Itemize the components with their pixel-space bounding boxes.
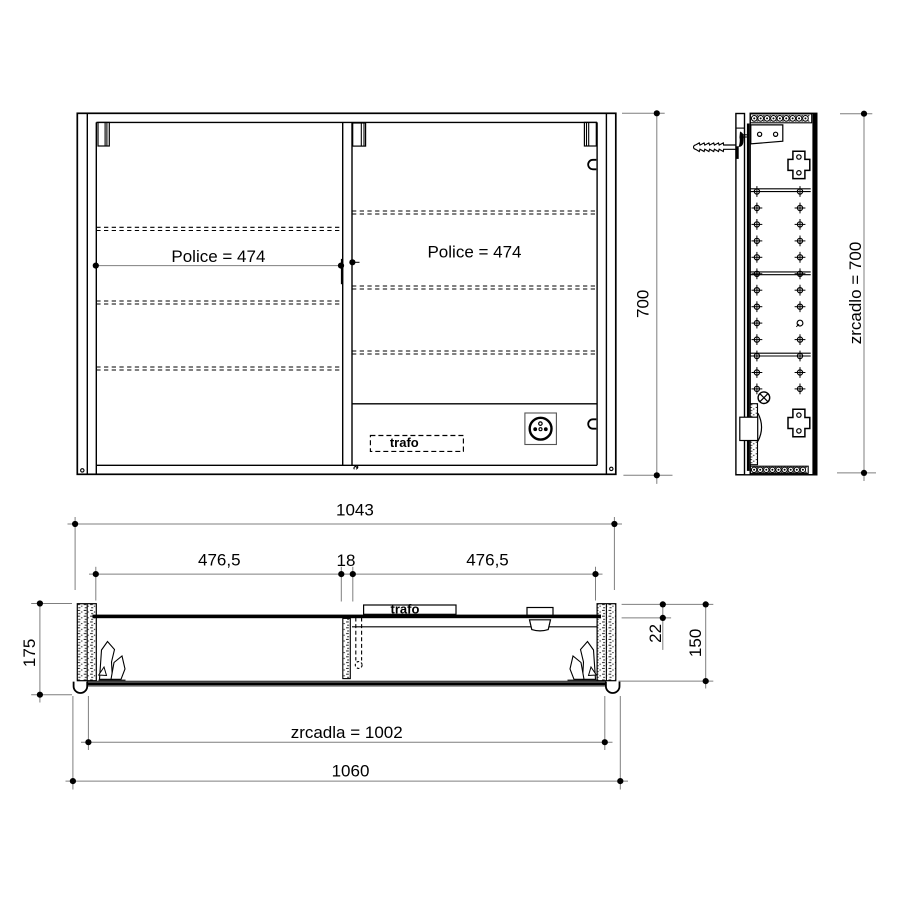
svg-text:Police = 474: Police = 474 bbox=[171, 247, 265, 266]
svg-text:zrcadla = 1002: zrcadla = 1002 bbox=[291, 723, 403, 742]
svg-text:trafo: trafo bbox=[390, 435, 419, 450]
svg-text:trafo: trafo bbox=[391, 601, 420, 616]
svg-text:476,5: 476,5 bbox=[466, 550, 509, 569]
svg-text:175: 175 bbox=[20, 639, 39, 667]
svg-text:zrcadlo = 700: zrcadlo = 700 bbox=[846, 242, 865, 345]
svg-text:150: 150 bbox=[686, 629, 705, 657]
svg-text:700: 700 bbox=[633, 290, 652, 318]
svg-text:1043: 1043 bbox=[336, 501, 374, 520]
svg-text:1060: 1060 bbox=[332, 762, 370, 781]
svg-text:Police = 474: Police = 474 bbox=[427, 243, 521, 262]
svg-text:22: 22 bbox=[646, 624, 665, 643]
svg-text:476,5: 476,5 bbox=[198, 550, 241, 569]
svg-text:18: 18 bbox=[337, 551, 356, 570]
